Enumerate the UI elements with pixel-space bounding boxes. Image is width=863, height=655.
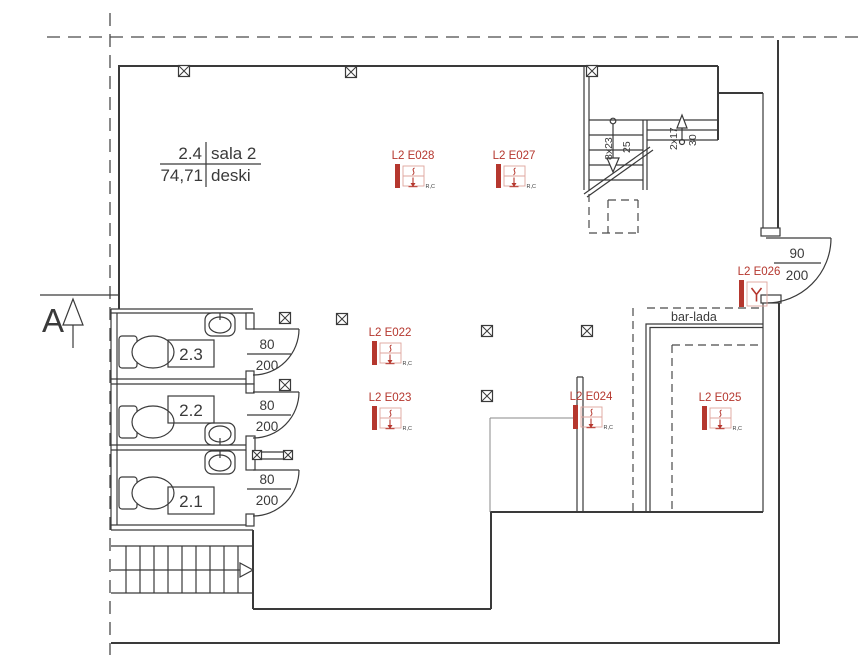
fixture-note: R,C: [527, 184, 537, 190]
dim-door-main: 90 200: [774, 246, 821, 283]
room-area: 74,71: [160, 166, 203, 185]
fixture-note: R,C: [604, 425, 614, 431]
toilet-2-3: [119, 336, 174, 368]
section-letter: A: [42, 302, 64, 339]
room-name: sala 2: [211, 144, 256, 163]
stair-down-count-label: 8x23: [603, 137, 615, 160]
toilet-2-2: [119, 406, 174, 438]
boundary-lines: [47, 13, 863, 655]
junction-box-icon: [280, 380, 291, 391]
fixture-note: R,C: [426, 184, 436, 190]
stair-hidden-dashed: [589, 194, 638, 233]
junction-box-icon: [482, 326, 493, 337]
stair-up-count-label: 2x17: [668, 127, 680, 150]
stair-up-width-label: 30: [687, 134, 699, 146]
room-label-2-2: 2.2: [179, 401, 203, 420]
dim-width: 80: [259, 337, 274, 352]
junction-box-icon: [337, 314, 348, 325]
dim-height: 200: [256, 419, 279, 434]
jamb-2-3-bottom: [246, 371, 254, 384]
sink-2-1: [205, 451, 235, 474]
room-label-2-1: 2.1: [179, 492, 203, 511]
junction-box-icon: [582, 326, 593, 337]
fixture-l2-e023: L2 E023R,C: [369, 392, 412, 432]
dim-door-2-3: 80 200: [247, 337, 291, 373]
switch-glyph: [591, 409, 593, 416]
fixture-bar: [739, 280, 744, 307]
jamb-main-top: [761, 228, 780, 236]
bar-area: bar-lada: [633, 308, 763, 512]
switch-glyph: [514, 168, 516, 175]
stair-up-arrow-head: [677, 115, 687, 128]
fixture-note: R,C: [403, 426, 413, 432]
stair-walkline-start: [610, 118, 616, 124]
fixture-note: R,C: [403, 361, 413, 367]
stair-left-wall: [584, 66, 589, 190]
dim-height: 200: [256, 493, 279, 508]
bar-label: bar-lada: [671, 310, 717, 324]
wc-wall-left: [111, 309, 117, 530]
fixture-label: L2 E023: [369, 392, 412, 404]
fixture-label: L2 E022: [369, 327, 412, 339]
sink-2-3: [205, 313, 235, 336]
dim-width: 80: [259, 398, 274, 413]
switch-glyph: [413, 168, 415, 175]
fixture-l2-e025: L2 E025R,C: [699, 392, 742, 432]
fixture-bar: [395, 164, 400, 188]
fixture-bar: [372, 341, 377, 365]
floor-plan-svg: 8x23 25 2x17 30: [0, 0, 863, 655]
fixture-note: R,C: [733, 426, 743, 432]
dim-width: 90: [789, 246, 804, 261]
fixture-l2-e022: L2 E022R,C: [369, 327, 412, 367]
room-finish: deski: [211, 166, 251, 185]
wall-lamp-glyph: [752, 288, 762, 302]
door-dimensions: 80 200 80 200 80 200 90 200: [247, 246, 821, 508]
main-room-label: 2.4 sala 2 74,71 deski: [160, 142, 261, 187]
fixture-bar: [372, 406, 377, 430]
junction-box-icon: [179, 66, 190, 77]
switch-glyph: [390, 410, 392, 417]
toilet-2-1: [119, 477, 174, 509]
stair-arrow-head: [240, 563, 253, 577]
fixture-label: L2 E027: [493, 150, 536, 162]
wc-wall-bottom: [111, 525, 253, 530]
fixture-l2-e028: L2 E028R,C: [392, 150, 435, 190]
dim-height: 200: [786, 268, 809, 283]
switch-glyph: [720, 410, 722, 417]
wc-wall-divider-2: [111, 445, 246, 450]
bar-outer-dashed: [633, 308, 762, 512]
junction-box-icon: [587, 66, 598, 77]
fixture-label: L2 E024: [570, 391, 613, 403]
dim-door-2-1: 80 200: [247, 472, 291, 508]
section-marker-a: A: [40, 295, 118, 348]
section-arrow-head: [63, 299, 83, 325]
junction-box-icon: [482, 391, 493, 402]
dim-width: 80: [259, 472, 274, 487]
switch-glyph: [390, 345, 392, 352]
fixture-l2-e027: L2 E027R,C: [493, 150, 536, 190]
floor-plan-canvas: 8x23 25 2x17 30: [0, 0, 863, 655]
junction-box-icon: [346, 67, 357, 78]
junction-box-icon: [253, 451, 262, 460]
sink-2-2: [205, 423, 235, 445]
junction-box-icon: [284, 451, 293, 460]
fixture-bar: [573, 405, 578, 429]
dim-height: 200: [256, 358, 279, 373]
stairs-upper: 8x23 25 2x17 30: [584, 66, 718, 233]
room-label-2-3: 2.3: [179, 345, 203, 364]
floor-edge-lines: [490, 418, 577, 512]
room-number: 2.4: [178, 144, 202, 163]
fixture-label: L2 E028: [392, 150, 435, 162]
jamb-2-3-top: [246, 313, 254, 329]
stairs-lower: [111, 546, 253, 593]
dim-door-2-2: 80 200: [247, 398, 291, 434]
jamb-2-2-top: [246, 384, 254, 393]
fixture-label: L2 E025: [699, 392, 742, 404]
fixture-l2-e024: L2 E024R,C: [570, 391, 613, 431]
fixture-label: L2 E026: [738, 266, 781, 278]
fixture-bar: [496, 164, 501, 188]
fixture-bar: [702, 406, 707, 430]
fixtures: L2 E028R,CL2 E027R,CL2 E022R,CL2 E023R,C…: [369, 150, 781, 432]
wc-wall-top: [111, 309, 253, 313]
stair-down-width-label: 25: [621, 141, 633, 153]
jamb-2-1-bottom: [246, 514, 254, 526]
wc-wall-divider-1: [111, 379, 248, 384]
junction-box-icon: [280, 313, 291, 324]
